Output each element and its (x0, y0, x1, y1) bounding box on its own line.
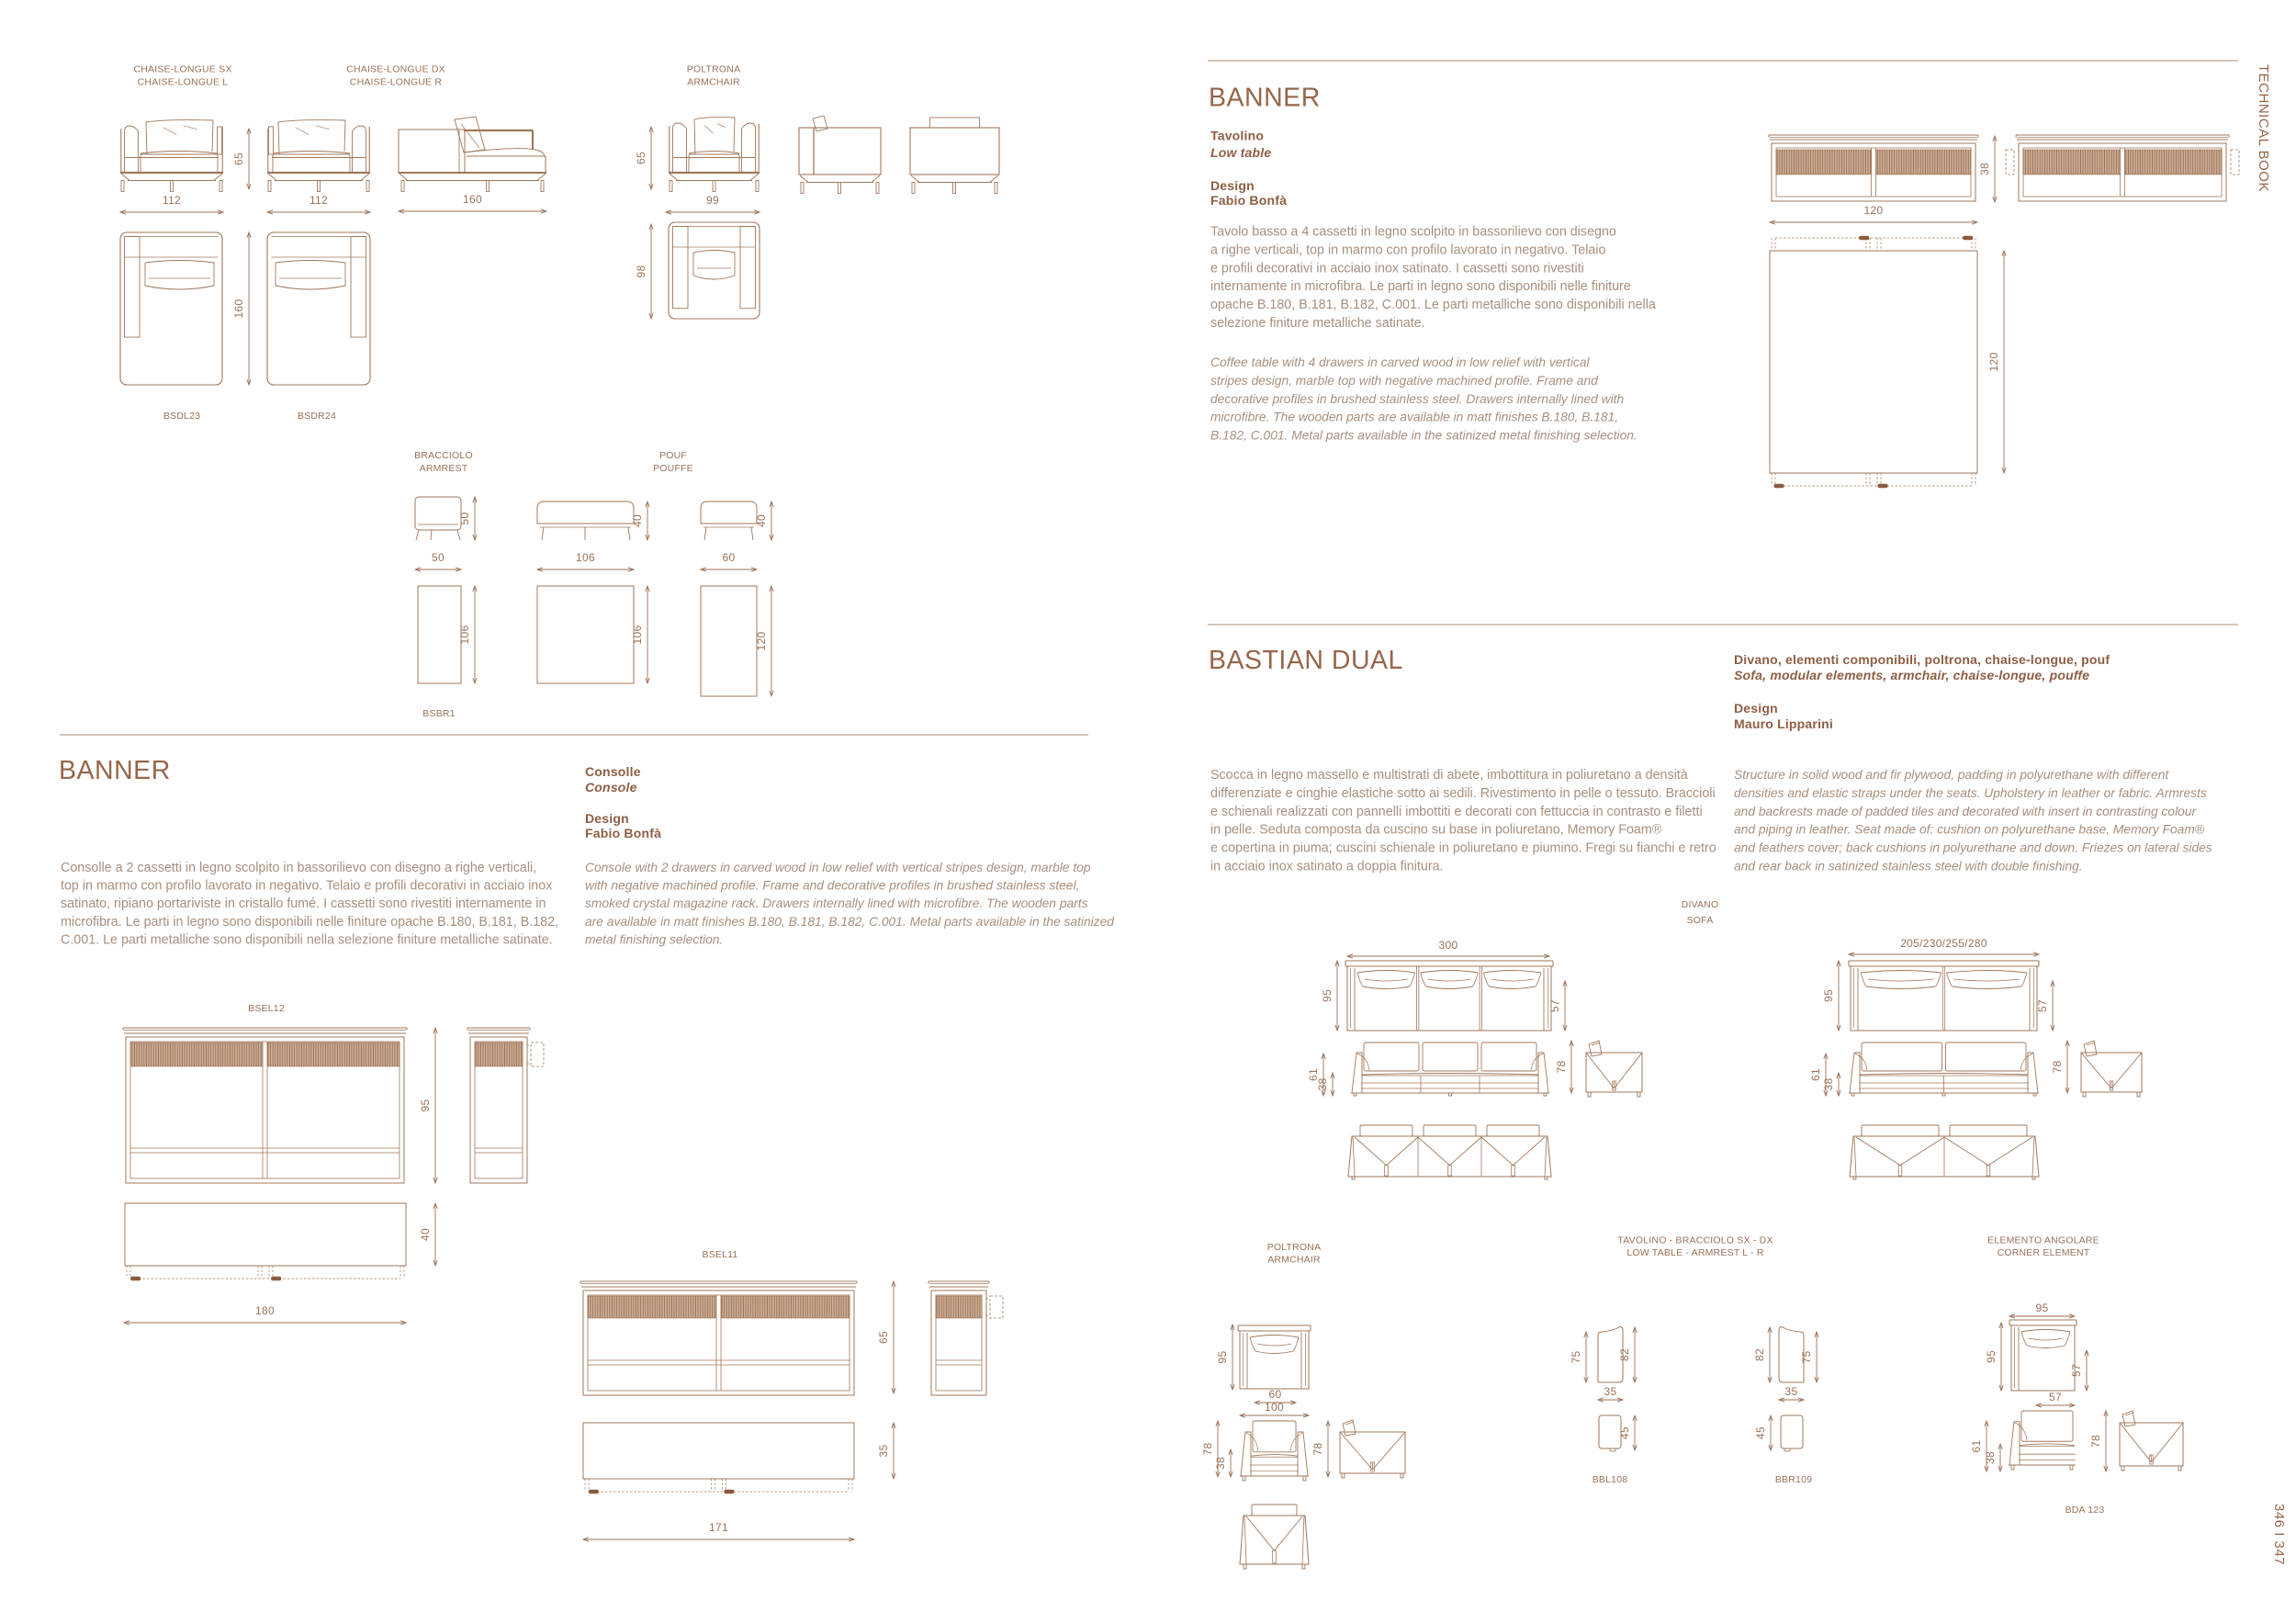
svg-text:decorative profiles in brushed: decorative profiles in brushed stainless… (1210, 392, 1624, 406)
svg-text:Fabio Bonfà: Fabio Bonfà (1210, 193, 1287, 208)
svg-text:opache B.180, B.181, B.182, C.: opache B.180, B.181, B.182, C.001. Le pa… (1210, 298, 1656, 312)
svg-text:Scocca in legno massello e mul: Scocca in legno massello e multistrati d… (1210, 768, 1688, 783)
svg-text:57: 57 (1548, 999, 1561, 1012)
svg-text:e copertina in piuma; cuscini: e copertina in piuma; cuscini schienale … (1210, 841, 1716, 856)
svg-text:metal finishing selection.: metal finishing selection. (585, 932, 723, 946)
svg-text:CHAISE-LONGUE DX: CHAISE-LONGUE DX (346, 64, 445, 75)
svg-text:DIVANO: DIVANO (1682, 899, 1719, 910)
svg-text:120: 120 (755, 632, 768, 651)
svg-text:selezione finiture metalliche: selezione finiture metalliche satinate. (1210, 316, 1425, 331)
svg-text:38: 38 (1978, 163, 1991, 175)
svg-text:35: 35 (1604, 1385, 1617, 1398)
svg-text:TAVOLINO - BRACCIOLO SX - DX: TAVOLINO - BRACCIOLO SX - DX (1617, 1235, 1773, 1246)
svg-text:45: 45 (1618, 1426, 1631, 1439)
svg-text:57: 57 (2070, 1364, 2083, 1377)
svg-text:300: 300 (1439, 939, 1458, 952)
svg-text:ARMREST: ARMREST (420, 463, 468, 474)
svg-text:Low table: Low table (1210, 145, 1271, 160)
svg-text:microfibra. Le parti in legno: microfibra. Le parti in legno sono dispo… (61, 915, 558, 930)
svg-text:CORNER ELEMENT: CORNER ELEMENT (1998, 1247, 2090, 1258)
svg-text:78: 78 (2051, 1061, 2064, 1074)
svg-text:78: 78 (1555, 1061, 1568, 1074)
svg-text:50: 50 (432, 551, 445, 564)
svg-text:120: 120 (1987, 353, 2000, 372)
svg-text:and feathers cover; back cushi: and feathers cover; back cushions in pol… (1734, 841, 2212, 855)
svg-text:75: 75 (1570, 1351, 1582, 1364)
svg-text:smoked crystal magazine rack.: smoked crystal magazine rack. Drawers in… (585, 896, 1088, 910)
svg-text:satinato, ripiano portariviste: satinato, ripiano portariviste in crista… (61, 896, 546, 911)
svg-text:CHAISE-LONGUE R: CHAISE-LONGUE R (350, 77, 443, 88)
svg-text:205/230/255/280: 205/230/255/280 (1900, 937, 1987, 950)
svg-text:SOFA: SOFA (1687, 915, 1714, 926)
svg-text:99: 99 (706, 194, 719, 207)
svg-text:BSDL23: BSDL23 (163, 411, 200, 422)
svg-text:60: 60 (1269, 1388, 1282, 1401)
svg-text:Consolle: Consolle (585, 764, 641, 779)
svg-text:75: 75 (1800, 1351, 1813, 1364)
svg-text:106: 106 (458, 626, 471, 645)
svg-text:and piping in leather. Seat ma: and piping in leather. Seat made of: cus… (1734, 823, 2205, 837)
svg-text:internamente in microfibra. Le: internamente in microfibra. Le parti in … (1210, 279, 1631, 294)
svg-text:112: 112 (163, 194, 181, 207)
svg-text:160: 160 (232, 299, 245, 319)
svg-text:Mauro Lipparini: Mauro Lipparini (1734, 716, 1833, 731)
svg-text:Design: Design (1210, 178, 1255, 193)
svg-text:Design: Design (1734, 701, 1778, 716)
svg-text:40: 40 (755, 514, 768, 527)
svg-text:top in marmo con profilo lavor: top in marmo con profilo lavorato in neg… (61, 879, 552, 894)
svg-text:microfibre. The wooden parts a: microfibre. The wooden parts are availab… (1210, 411, 1618, 424)
svg-text:CHAISE-LONGUE L: CHAISE-LONGUE L (138, 77, 229, 88)
svg-text:ARMCHAIR: ARMCHAIR (687, 77, 740, 88)
svg-text:densities and elastic straps u: densities and elastic straps under the s… (1734, 786, 2207, 800)
svg-text:78: 78 (1201, 1443, 1214, 1456)
svg-text:180: 180 (255, 1304, 275, 1317)
svg-text:98: 98 (635, 265, 647, 278)
svg-text:Design: Design (585, 811, 629, 826)
svg-text:C.001. Le parti metalliche son: C.001. Le parti metalliche sono disponib… (61, 932, 553, 947)
svg-text:POLTRONA: POLTRONA (687, 64, 741, 75)
svg-text:65: 65 (635, 152, 647, 164)
svg-text:82: 82 (1753, 1348, 1766, 1361)
svg-text:BSEL12: BSEL12 (248, 1003, 285, 1014)
svg-text:Fabio Bonfà: Fabio Bonfà (585, 826, 661, 840)
svg-text:65: 65 (232, 152, 245, 165)
svg-text:40: 40 (631, 514, 644, 527)
svg-text:Structure in solid wood and fi: Structure in solid wood and fir plywood,… (1734, 768, 2169, 782)
svg-text:BASTIAN DUAL: BASTIAN DUAL (1209, 646, 1403, 675)
svg-text:78: 78 (1311, 1443, 1324, 1456)
svg-text:38: 38 (1214, 1457, 1227, 1470)
svg-text:82: 82 (1618, 1348, 1631, 1361)
svg-text:95: 95 (1985, 1350, 1998, 1363)
svg-text:POUFFE: POUFFE (653, 463, 693, 474)
svg-text:are available in matt finishes: are available in matt finishes B.180, B.… (585, 915, 1115, 929)
svg-text:BBL108: BBL108 (1593, 1474, 1628, 1485)
svg-text:106: 106 (631, 626, 644, 645)
svg-text:40: 40 (419, 1228, 432, 1241)
svg-text:57: 57 (2049, 1391, 2062, 1403)
svg-text:95: 95 (1321, 989, 1334, 1002)
svg-text:95: 95 (2036, 1302, 2049, 1314)
svg-text:e profili decorativi in acciai: e profili decorativi in acciaio inox sat… (1210, 261, 1584, 276)
svg-text:57: 57 (2036, 999, 2049, 1012)
svg-text:Consolle a 2 cassetti in legno: Consolle a 2 cassetti in legno scolpito … (61, 861, 536, 875)
svg-text:61: 61 (1809, 1068, 1822, 1081)
svg-text:BSDR24: BSDR24 (298, 411, 336, 422)
svg-text:61: 61 (1970, 1440, 1983, 1453)
svg-text:38: 38 (1984, 1451, 1997, 1464)
svg-text:BBR109: BBR109 (1775, 1474, 1812, 1485)
svg-text:95: 95 (419, 1099, 432, 1112)
svg-text:95: 95 (1216, 1351, 1229, 1364)
svg-text:38: 38 (1316, 1078, 1329, 1091)
svg-text:BANNER: BANNER (1209, 84, 1321, 113)
svg-text:BSEL11: BSEL11 (703, 1249, 738, 1260)
svg-text:160: 160 (463, 193, 482, 206)
svg-text:POUF: POUF (659, 450, 687, 461)
svg-text:Tavolino: Tavolino (1210, 129, 1264, 143)
svg-text:50: 50 (458, 513, 471, 525)
svg-text:e schienali realizzati con pan: e schienali realizzati con pannelli imbo… (1210, 805, 1703, 819)
svg-text:LOW TABLE - ARMREST L - R: LOW TABLE - ARMREST L - R (1626, 1247, 1764, 1258)
svg-text:Coffee table with 4 drawers in: Coffee table with 4 drawers in carved wo… (1210, 355, 1590, 369)
svg-text:100: 100 (1265, 1401, 1284, 1414)
svg-text:Console: Console (585, 780, 637, 795)
svg-text:BANNER: BANNER (59, 756, 171, 785)
svg-text:differenziate e cinghie elasti: differenziate e cinghie elastiche sotto … (1210, 786, 1716, 801)
svg-text:CHAISE-LONGUE SX: CHAISE-LONGUE SX (133, 64, 231, 75)
svg-text:BSBR1: BSBR1 (422, 708, 455, 719)
svg-text:ARMCHAIR: ARMCHAIR (1267, 1255, 1321, 1266)
svg-text:38: 38 (1822, 1078, 1835, 1091)
svg-text:35: 35 (877, 1445, 890, 1458)
svg-text:106: 106 (576, 551, 595, 564)
svg-text:ELEMENTO ANGOLARE: ELEMENTO ANGOLARE (1987, 1235, 2099, 1246)
svg-text:120: 120 (1864, 204, 1884, 217)
svg-text:and rear back in satinized sta: and rear back in satinized stainless ste… (1734, 860, 2083, 873)
svg-text:in pelle. Seduta composta da c: in pelle. Seduta composta da cuscino su … (1210, 823, 1662, 838)
svg-text:78: 78 (2089, 1435, 2102, 1448)
svg-text:45: 45 (1754, 1426, 1767, 1439)
svg-text:Divano, elementi componibili,: Divano, elementi componibili, poltrona, … (1734, 652, 2110, 667)
svg-text:95: 95 (1822, 989, 1835, 1002)
svg-text:stripes design, marble top wit: stripes design, marble top with negative… (1210, 374, 1599, 388)
svg-text:BDA 123: BDA 123 (2065, 1505, 2105, 1516)
svg-text:POLTRONA: POLTRONA (1267, 1242, 1322, 1253)
svg-text:112: 112 (310, 194, 328, 207)
svg-text:BRACCIOLO: BRACCIOLO (414, 450, 473, 461)
svg-text:Sofa, modular elements, armcha: Sofa, modular elements, armchair, chaise… (1734, 668, 2089, 682)
svg-text:65: 65 (877, 1331, 890, 1344)
svg-text:346 I 347: 346 I 347 (2271, 1504, 2287, 1565)
svg-text:60: 60 (723, 551, 736, 564)
svg-text:TECHNICAL BOOK: TECHNICAL BOOK (2256, 64, 2271, 192)
svg-text:B.182, C.001. Metal parts avai: B.182, C.001. Metal parts available in t… (1210, 429, 1638, 443)
svg-text:35: 35 (1785, 1385, 1798, 1398)
svg-text:a righe verticali, top in marm: a righe verticali, top in marmo con prof… (1210, 242, 1606, 257)
svg-text:with negative machined profile: with negative machined profile. Frame an… (585, 879, 1079, 893)
svg-text:Tavolo basso a 4 cassetti in l: Tavolo basso a 4 cassetti in legno scolp… (1210, 225, 1616, 240)
svg-text:and backrests made of padded t: and backrests made of padded tiles and d… (1734, 805, 2198, 818)
svg-text:Console with 2 drawers in carv: Console with 2 drawers in carved wood in… (585, 861, 1091, 874)
svg-text:171: 171 (709, 1521, 728, 1534)
svg-text:in acciaio inox satinato a dop: in acciaio inox satinato a doppia finitu… (1210, 860, 1444, 874)
